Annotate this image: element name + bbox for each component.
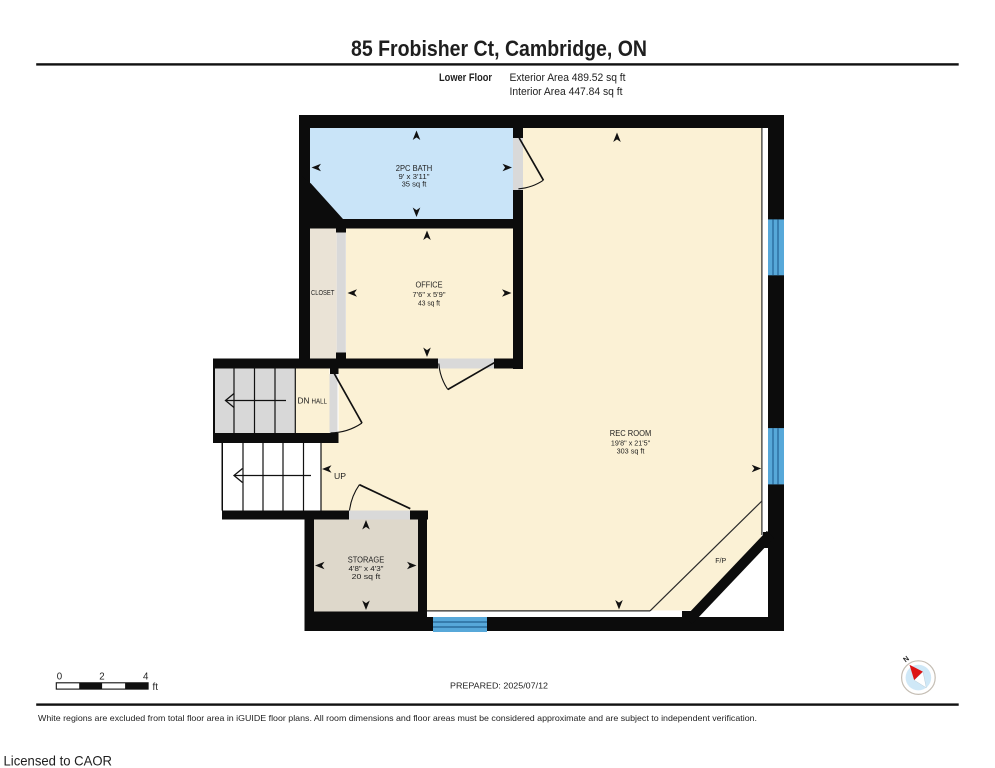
svg-text:303 sq ft: 303 sq ft — [617, 447, 646, 456]
svg-text:ft: ft — [153, 682, 159, 693]
svg-text:4: 4 — [143, 672, 149, 683]
svg-text:43 sq ft: 43 sq ft — [418, 298, 441, 307]
svg-text:Exterior Area 489.52 sq ft: Exterior Area 489.52 sq ft — [510, 72, 627, 84]
svg-text:OFFICE: OFFICE — [416, 280, 443, 290]
svg-text:White regions are excluded fro: White regions are excluded from total fl… — [38, 713, 757, 723]
svg-text:2: 2 — [99, 672, 104, 683]
svg-text:Lower Floor: Lower Floor — [439, 72, 493, 84]
svg-text:DN: DN — [298, 396, 310, 406]
svg-text:STORAGE: STORAGE — [348, 554, 385, 564]
svg-text:20 sq ft: 20 sq ft — [352, 572, 382, 581]
svg-text:Licensed to CAOR: Licensed to CAOR — [4, 753, 113, 768]
svg-text:REC ROOM: REC ROOM — [610, 428, 652, 438]
svg-text:N: N — [901, 654, 911, 664]
svg-text:HALL: HALL — [312, 399, 328, 406]
svg-text:35 sq ft: 35 sq ft — [402, 179, 428, 188]
svg-text:85 Frobisher Ct, Cambridge, ON: 85 Frobisher Ct, Cambridge, ON — [351, 36, 647, 61]
svg-text:0: 0 — [57, 672, 63, 683]
svg-text:UP: UP — [334, 471, 346, 481]
svg-text:PREPARED: 2025/07/12: PREPARED: 2025/07/12 — [450, 681, 548, 691]
svg-text:Interior Area 447.84 sq ft: Interior Area 447.84 sq ft — [510, 86, 624, 98]
svg-text:F/P: F/P — [715, 556, 726, 565]
svg-text:CLOSET: CLOSET — [311, 290, 335, 297]
